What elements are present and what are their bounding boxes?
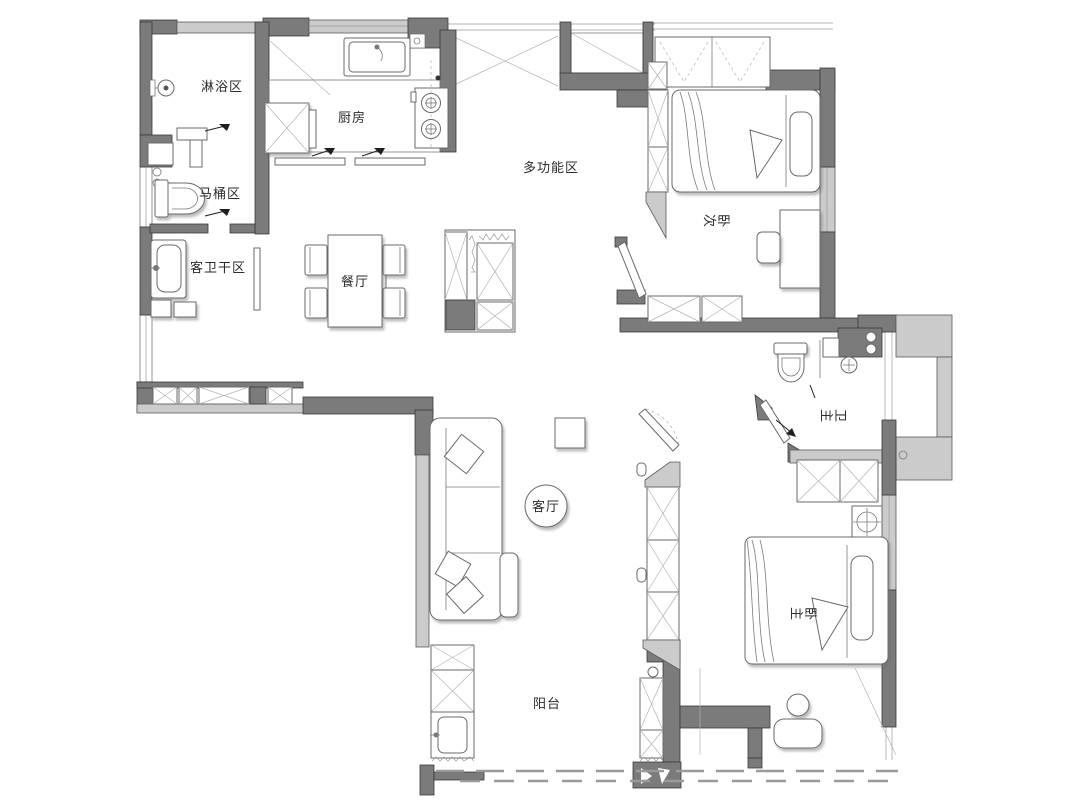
- toilet-icon: [153, 168, 205, 217]
- bed-master: [745, 537, 888, 664]
- balcony-left-cabinets: [430, 645, 474, 761]
- room-label-living: 客厅: [532, 499, 560, 515]
- room-label-guest-bath-dry: 客卫干区: [190, 260, 246, 276]
- dresser-cabinets: [797, 460, 882, 538]
- floor-plan-drawing: 淋浴区 厨房 马桶区 客卫干区 餐厅 多功能区 次卧 主卫 客厅 主卧 阳台: [0, 0, 1080, 810]
- vanity-sink: [150, 240, 186, 298]
- shower-head-icon: [150, 80, 174, 96]
- living-room: [430, 409, 679, 640]
- kitchen-sink-icon: [344, 38, 410, 76]
- walls: [137, 18, 952, 795]
- room-label-balcony: 阳台: [533, 697, 561, 712]
- wall-cabinet-row: [153, 387, 292, 404]
- corridor-cabinets: [648, 296, 742, 322]
- floor-plan-canvas: 淋浴区 厨房 马桶区 客卫干区 餐厅 多功能区 次卧 主卫 客厅 主卧 阳台: [0, 0, 1080, 810]
- door-arrow: [205, 124, 230, 216]
- room-label-toilet: 马桶区: [199, 187, 241, 202]
- dressing-table: [680, 694, 822, 768]
- laundry-sink-icon: [430, 712, 474, 758]
- side-table: [555, 418, 585, 448]
- closet-column: [646, 90, 668, 238]
- room-label-shower: 淋浴区: [201, 80, 243, 95]
- sofa: [430, 418, 518, 620]
- master-bedroom: [680, 537, 896, 768]
- tv-cabinet-column: [637, 463, 679, 640]
- room-label-dining: 餐厅: [341, 274, 369, 290]
- master-bathroom: [760, 328, 882, 443]
- wardrobe: [648, 37, 770, 89]
- water-heater-icon: [852, 506, 882, 538]
- room-label-second-bedroom: 次卧: [701, 214, 730, 228]
- bed-second: [672, 90, 820, 192]
- hallway-cabinet: [445, 230, 515, 332]
- room-label-master-bath: 主卫: [818, 409, 847, 423]
- room-label-master-bedroom: 主卧: [788, 607, 817, 621]
- kitchen: [265, 38, 448, 165]
- room-label-kitchen: 厨房: [338, 110, 366, 126]
- room-label-multifunction: 多功能区: [523, 160, 579, 176]
- door-corridor: [639, 409, 679, 451]
- door-master-bath: [760, 400, 796, 443]
- bath-sink-counter: [823, 328, 882, 373]
- dining-area: [305, 230, 515, 332]
- toilet-master-icon: [774, 343, 807, 382]
- desk: [757, 210, 820, 288]
- fridge-cabinet: [265, 103, 316, 153]
